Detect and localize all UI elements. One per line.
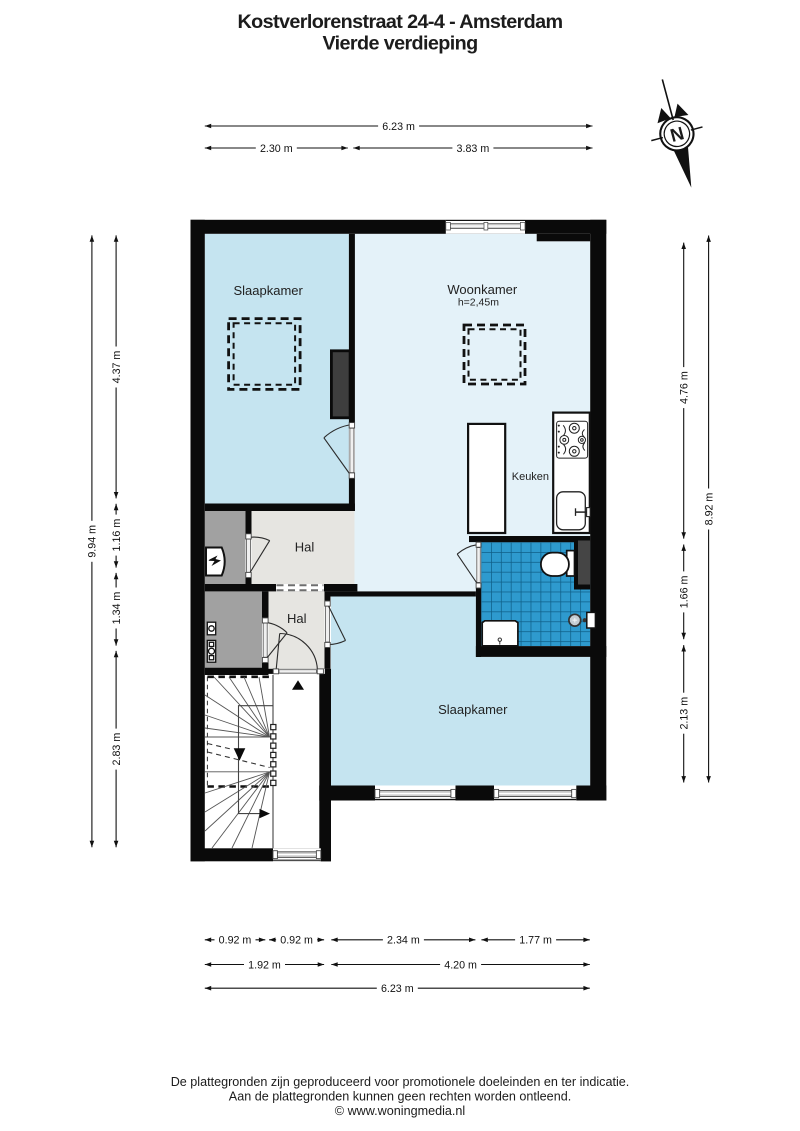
svg-text:1.77 m: 1.77 m: [519, 935, 552, 947]
svg-text:8.92 m: 8.92 m: [703, 493, 715, 526]
svg-text:6.23 m: 6.23 m: [382, 121, 415, 133]
svg-text:Slaapkamer: Slaapkamer: [438, 702, 508, 717]
svg-text:h=2,45m: h=2,45m: [458, 297, 499, 309]
svg-text:Kostverlorenstraat 24-4 - Amst: Kostverlorenstraat 24-4 - Amsterdam: [238, 11, 563, 33]
svg-text:2.13 m: 2.13 m: [679, 697, 691, 730]
svg-text:2.83 m: 2.83 m: [111, 733, 123, 766]
svg-text:4.20 m: 4.20 m: [444, 959, 477, 971]
svg-text:Aan de plattegronden kunnen ge: Aan de plattegronden kunnen geen rechten…: [229, 1090, 571, 1104]
svg-text:2.30 m: 2.30 m: [260, 143, 293, 155]
svg-text:Keuken: Keuken: [512, 471, 549, 483]
svg-text:1.66 m: 1.66 m: [679, 575, 691, 608]
svg-text:De plattegronden zijn geproduc: De plattegronden zijn geproduceerd voor …: [171, 1075, 630, 1089]
svg-text:Slaapkamer: Slaapkamer: [234, 283, 304, 298]
svg-text:6.23 m: 6.23 m: [381, 983, 414, 995]
svg-text:Hal: Hal: [287, 611, 307, 626]
svg-text:© www.woningmedia.nl: © www.woningmedia.nl: [335, 1104, 465, 1118]
svg-text:Hal: Hal: [295, 540, 315, 555]
svg-text:Woonkamer: Woonkamer: [447, 282, 518, 297]
svg-text:3.83 m: 3.83 m: [457, 143, 490, 155]
svg-text:1.34 m: 1.34 m: [111, 592, 123, 625]
svg-text:2.34 m: 2.34 m: [387, 935, 420, 947]
svg-text:1.92 m: 1.92 m: [248, 959, 281, 971]
svg-text:4.76 m: 4.76 m: [679, 371, 691, 404]
svg-text:Vierde verdieping: Vierde verdieping: [322, 33, 477, 55]
svg-text:0.92 m: 0.92 m: [219, 935, 252, 947]
svg-text:0.92 m: 0.92 m: [280, 935, 313, 947]
svg-text:1.16 m: 1.16 m: [111, 519, 123, 552]
svg-text:9.94 m: 9.94 m: [87, 525, 99, 558]
svg-text:4.37 m: 4.37 m: [111, 351, 123, 384]
